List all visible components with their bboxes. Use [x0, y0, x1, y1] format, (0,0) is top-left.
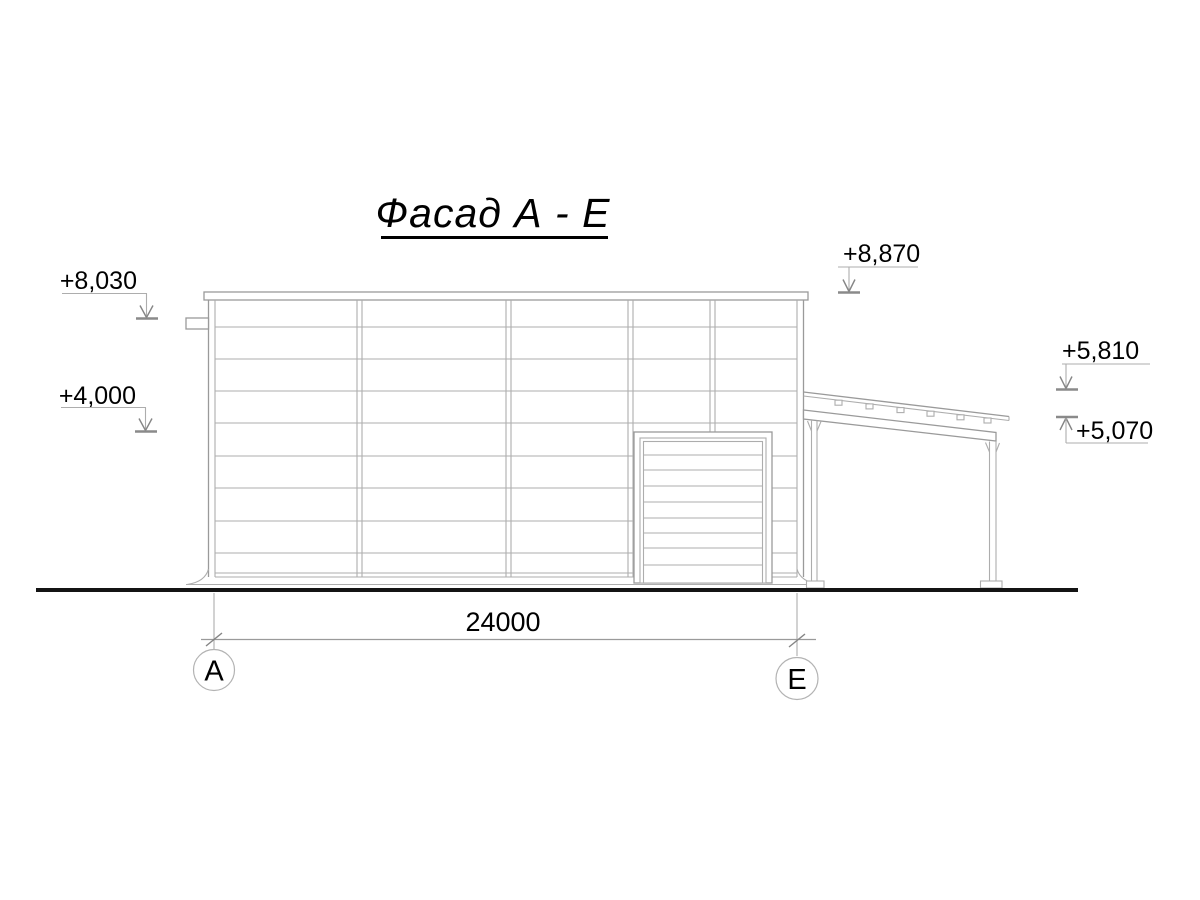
- annex-edge-beam: [804, 410, 997, 441]
- facade-elevation-svg: Фасад А - Е: [0, 0, 1200, 900]
- drawing-title: Фасад А - Е: [376, 190, 611, 236]
- plinth-flare-left: [187, 569, 209, 585]
- axis-marker-a: А: [194, 650, 235, 691]
- elevation-label: +5,070: [1076, 417, 1153, 445]
- elevation-label: +4,000: [59, 382, 136, 410]
- roof-purlin: [927, 411, 934, 416]
- elevation-mark-5070: +5,070: [1056, 417, 1153, 445]
- axis-marker-e: Е: [776, 658, 818, 700]
- elevation-mark-4000: +4,000: [59, 382, 157, 432]
- axis-label-a: А: [204, 656, 224, 688]
- facade-drawing-sheet: Фасад А - Е: [0, 0, 1200, 900]
- parapet-cap: [204, 292, 808, 300]
- annex-lean-to: [804, 392, 1010, 588]
- dimension-overall: 24000: [201, 593, 816, 656]
- elevation-mark-8030: +8,030: [60, 267, 158, 319]
- roof-purlin: [866, 404, 873, 409]
- annex-column-base: [807, 581, 825, 588]
- elevation-label: +8,870: [843, 240, 920, 268]
- annex-column-left-capital: [817, 422, 821, 432]
- elevation-label: +5,810: [1062, 337, 1139, 365]
- title-block: Фасад А - Е: [376, 190, 611, 238]
- elevation-label: +8,030: [60, 267, 137, 295]
- dimension-value: 24000: [465, 607, 540, 637]
- annex-roof-top-line: [804, 392, 1010, 417]
- sectional-gate: [634, 432, 772, 583]
- annex-column-left-capital: [808, 421, 812, 431]
- axis-label-e: Е: [787, 664, 806, 696]
- annex-column-base: [981, 581, 1003, 588]
- left-canopy-protrusion: [186, 318, 209, 329]
- roof-purlin: [957, 415, 964, 420]
- roof-purlin: [897, 408, 904, 413]
- roof-purlin: [984, 418, 991, 423]
- elevation-mark-5810: +5,810: [1056, 337, 1150, 390]
- annex-column-right-capital: [986, 443, 990, 453]
- roof-purlin: [835, 400, 842, 405]
- gate-leaf: [644, 442, 763, 584]
- elevation-mark-8870: +8,870: [838, 240, 920, 293]
